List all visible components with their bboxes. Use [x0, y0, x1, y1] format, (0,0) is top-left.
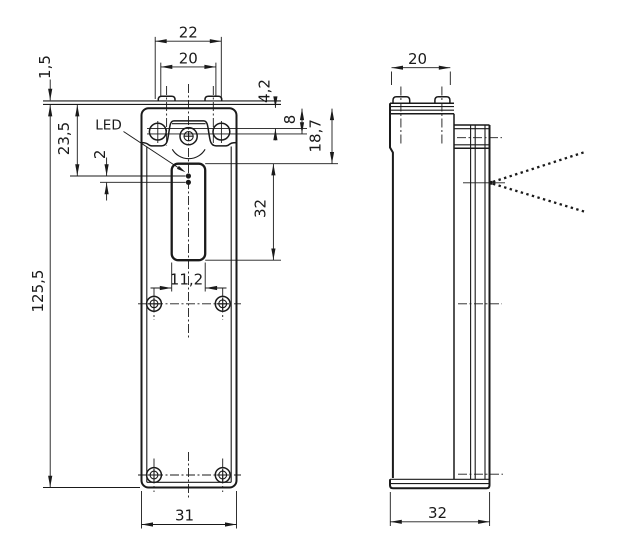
dim-tab-width-outer: 22: [179, 24, 198, 42]
led-reference-lines: [70, 176, 186, 182]
dim-plate-thickness: 1,5: [36, 55, 54, 79]
dim-hole-axis: 8: [281, 115, 299, 125]
dim-window-width: 11,2: [170, 271, 203, 289]
dim-overall-height: 125,5: [29, 270, 47, 313]
body-inner-wall: [147, 147, 231, 483]
front-view: [43, 84, 338, 529]
dim-window-height: 32: [252, 199, 270, 218]
beam-origin: [489, 181, 493, 185]
side-left-edge: [390, 103, 393, 478]
mounting-plate-edge: [43, 101, 281, 105]
dim-side-top-width: 20: [408, 50, 427, 68]
led-leader-arrow: [177, 166, 186, 172]
side-groove-lines: [471, 125, 476, 479]
sensor-dimension-drawing: 22 20 1,5 125,5 23,5 2 4,2 8 18,7 32 11,…: [0, 0, 623, 560]
side-plate-inner-lines: [390, 107, 454, 111]
dim-body-width: 31: [175, 507, 194, 525]
top-tabs: [158, 96, 221, 101]
front-dimensions: 22 20 1,5 125,5 23,5 2 4,2 8 18,7 32 11,…: [29, 24, 332, 525]
dim-head-step: 4,2: [256, 79, 274, 103]
dim-tab-width-inner: 20: [179, 49, 198, 67]
dim-led-from-top: 23,5: [55, 122, 73, 155]
led-label: LED: [95, 118, 121, 134]
bottom-reference-lines: [43, 488, 237, 529]
technical-drawing-canvas: 22 20 1,5 125,5 23,5 2 4,2 8 18,7 32 11,…: [0, 0, 623, 560]
side-plate-lines: [390, 103, 454, 114]
side-view: [390, 87, 584, 489]
hole-reference-lines: [147, 128, 307, 134]
dim-side-depth: 32: [428, 504, 447, 522]
dim-led-dot-spacing: 2: [91, 150, 109, 160]
beam-fan-upper: [493, 152, 584, 182]
sensing-head-inner: [454, 129, 490, 145]
dim-window-from-top: 18,7: [307, 119, 325, 152]
side-top-tabs: [393, 97, 450, 104]
side-flange-lines: [390, 479, 490, 483]
beam-fan-lower: [493, 184, 584, 212]
